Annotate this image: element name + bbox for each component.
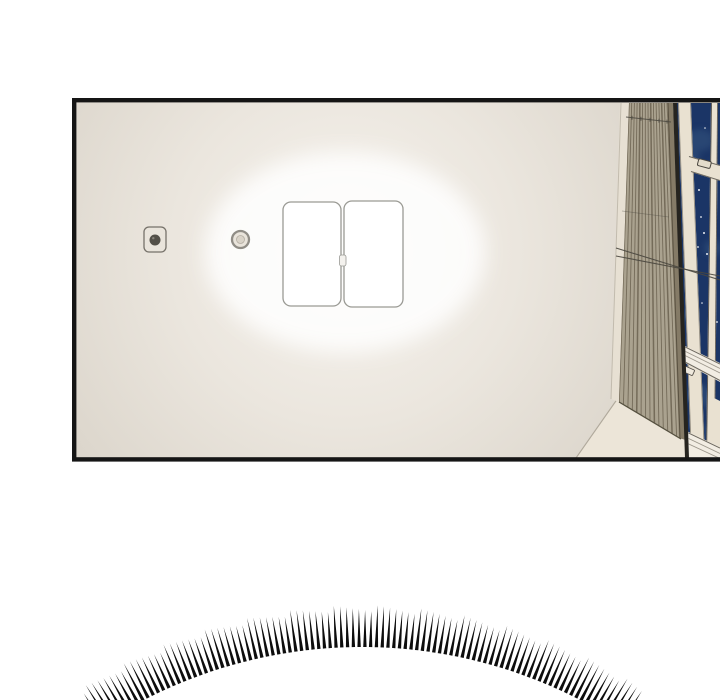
ceiling-light-right bbox=[344, 201, 403, 307]
scene-canvas bbox=[0, 0, 720, 700]
comic-page bbox=[0, 0, 720, 700]
detector-highlight bbox=[152, 237, 154, 239]
smoke-detector bbox=[144, 227, 166, 252]
comic-panel bbox=[74, 100, 720, 462]
sprinkler-center bbox=[237, 236, 245, 244]
ceiling-light-left bbox=[283, 202, 341, 306]
light-hinge bbox=[340, 255, 347, 266]
detector-sensor bbox=[150, 235, 161, 246]
speed-line-burst bbox=[84, 605, 642, 700]
sprinkler-head bbox=[232, 231, 249, 248]
